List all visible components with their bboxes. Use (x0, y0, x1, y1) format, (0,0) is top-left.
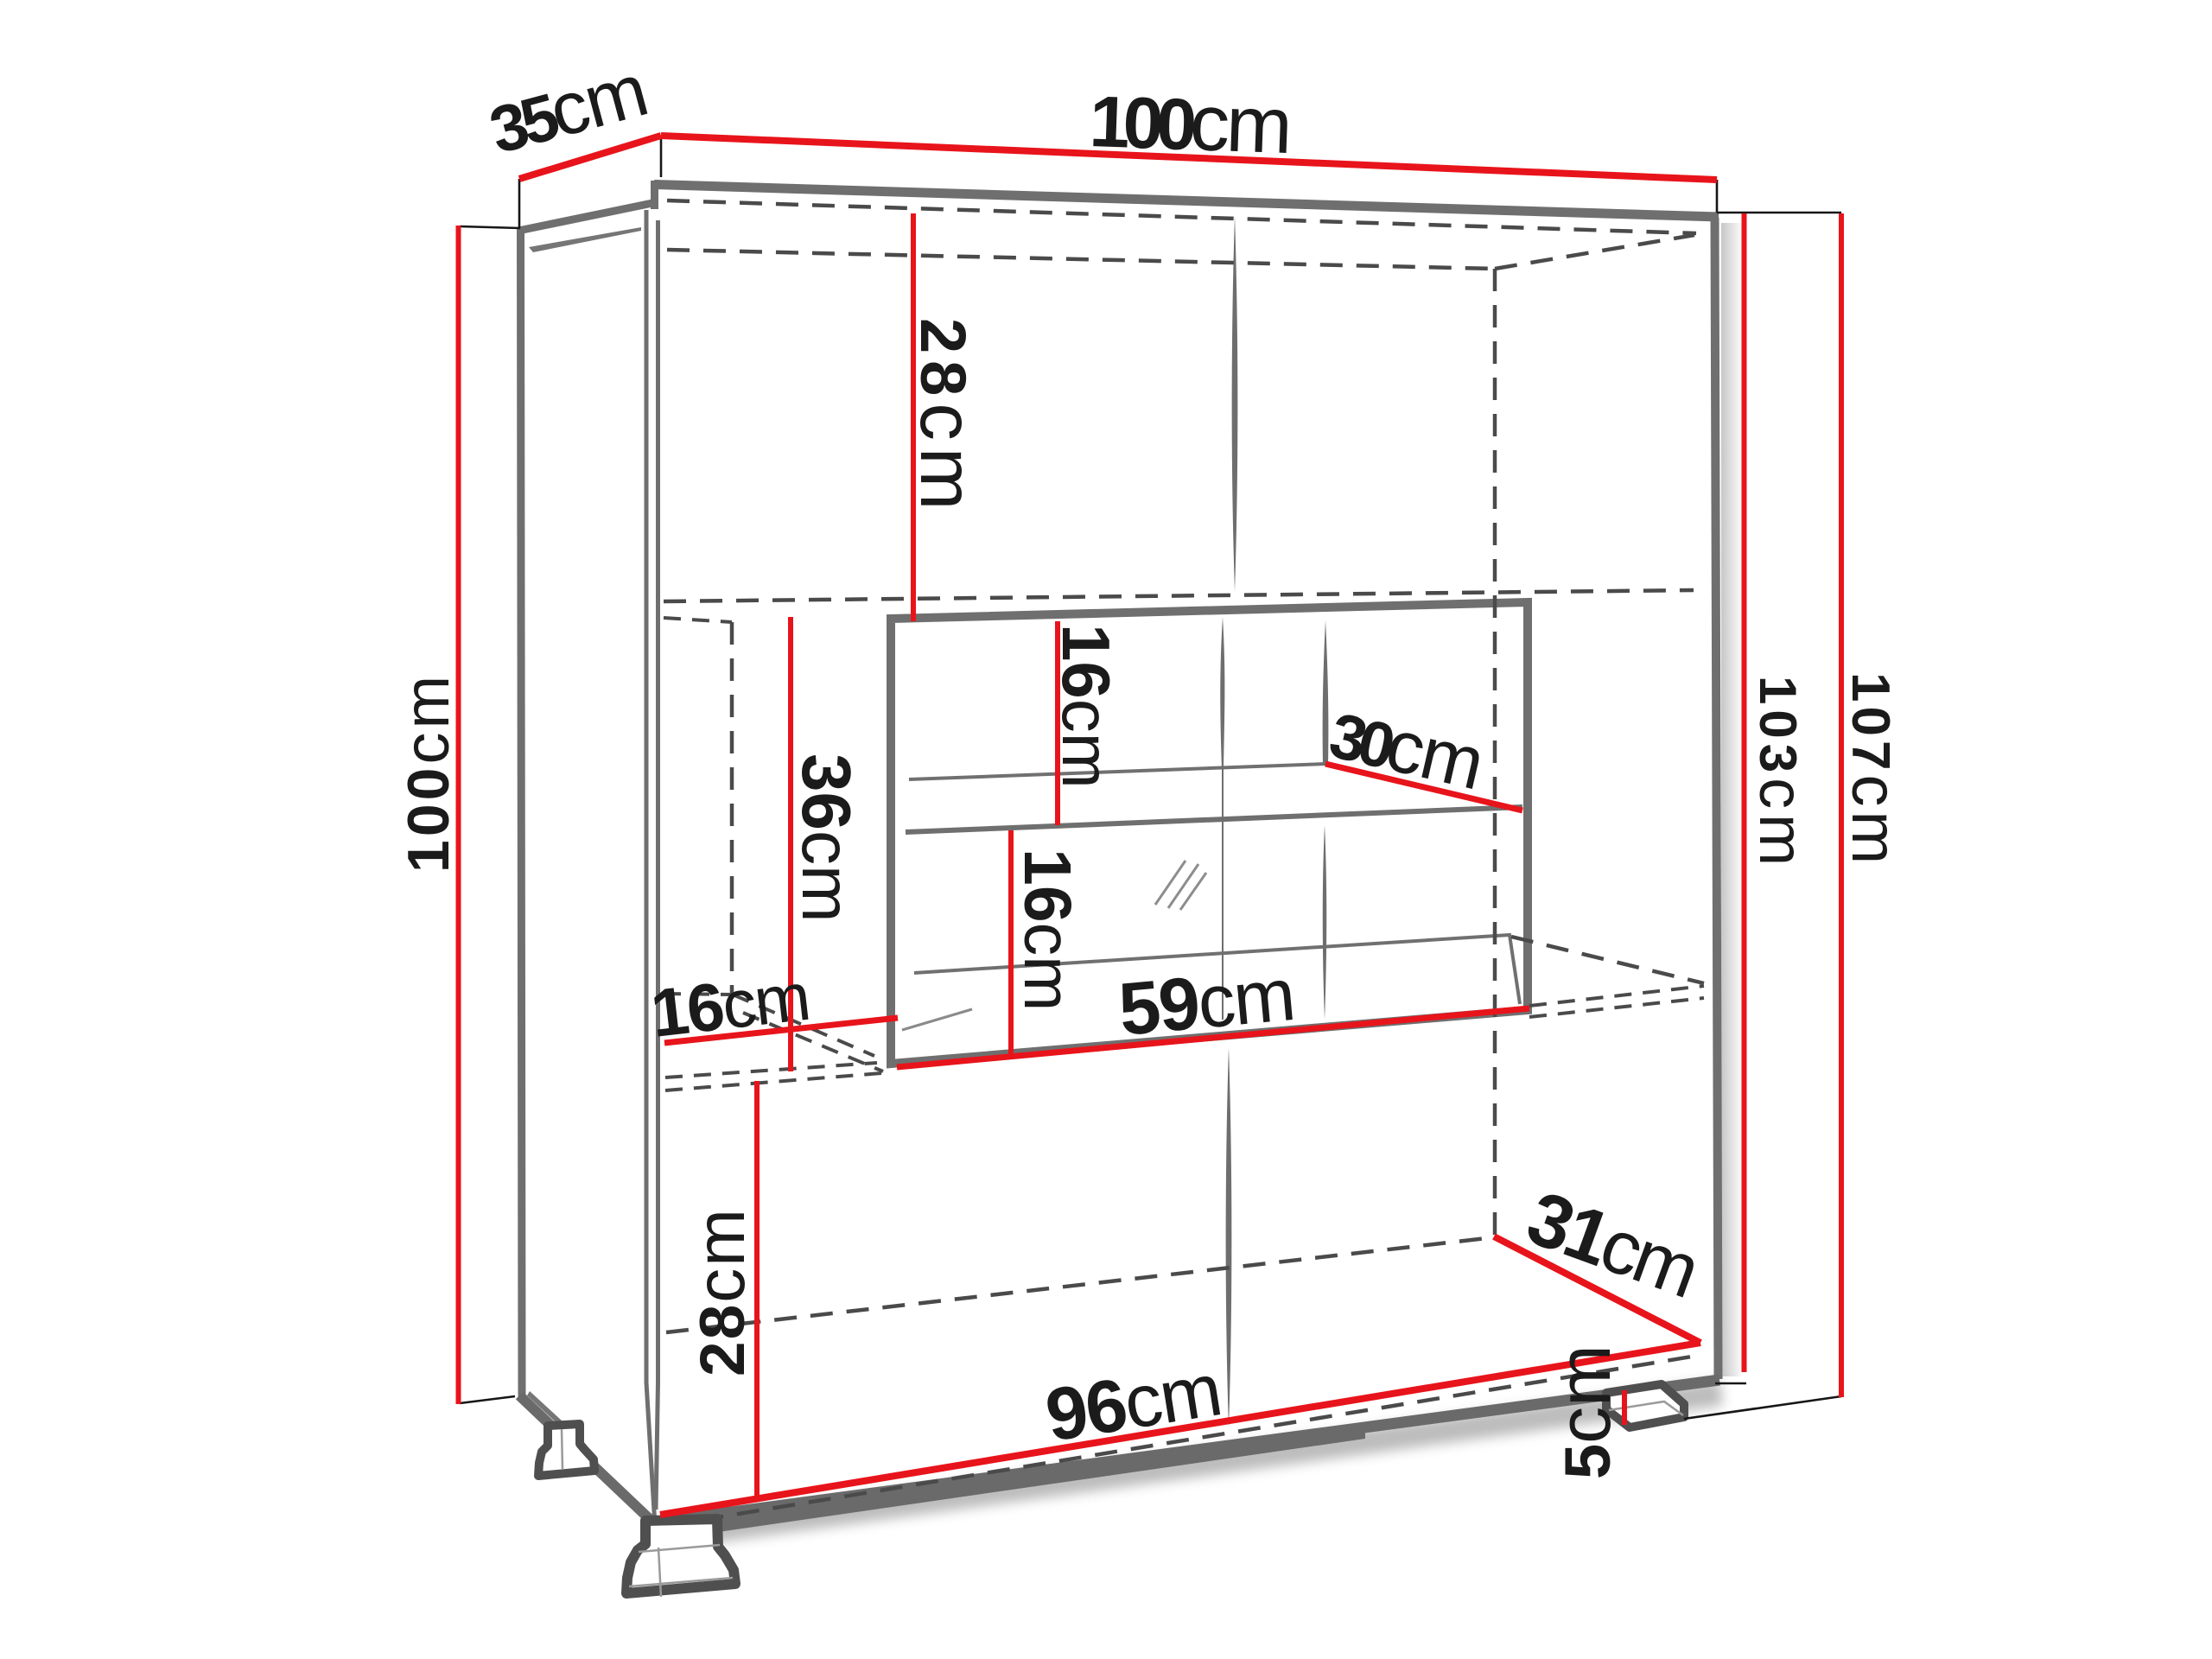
svg-text:5cm: 5cm (1543, 1344, 1626, 1479)
svg-text:100cm: 100cm (391, 672, 462, 873)
svg-text:16cm: 16cm (1048, 624, 1124, 789)
svg-text:107cm: 107cm (1839, 672, 1910, 868)
svg-text:36cm: 36cm (788, 753, 865, 923)
svg-text:103cm: 103cm (1746, 676, 1815, 871)
svg-text:100cm: 100cm (1088, 75, 1290, 170)
svg-text:59cm: 59cm (1116, 953, 1297, 1052)
svg-text:28cm: 28cm (905, 318, 988, 517)
svg-text:16cm: 16cm (1010, 849, 1084, 1011)
svg-text:28cm: 28cm (682, 1207, 759, 1376)
